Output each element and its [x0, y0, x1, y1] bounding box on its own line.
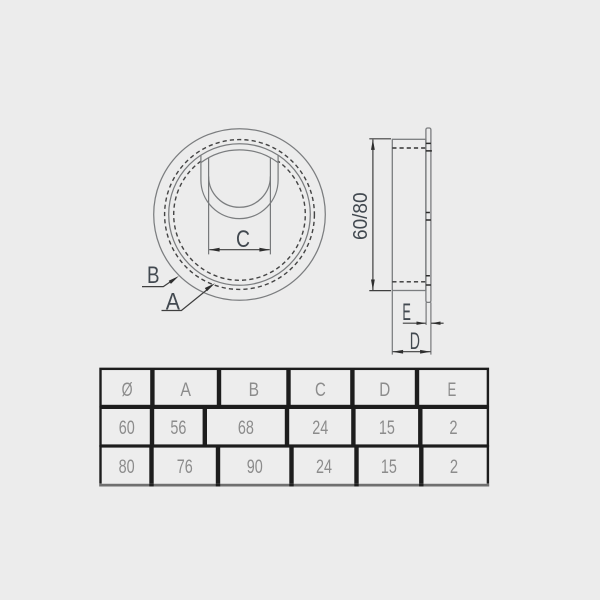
svg-text:2: 2 [449, 417, 457, 439]
svg-text:15: 15 [381, 456, 397, 478]
svg-text:56: 56 [170, 417, 186, 439]
svg-text:76: 76 [177, 456, 193, 478]
svg-text:D: D [410, 328, 420, 355]
svg-text:A: A [180, 379, 191, 401]
svg-text:C: C [315, 379, 326, 401]
svg-text:80: 80 [119, 456, 135, 478]
svg-text:24: 24 [312, 417, 328, 439]
svg-text:B: B [147, 262, 160, 289]
svg-text:E: E [402, 299, 411, 326]
svg-text:24: 24 [316, 456, 332, 478]
svg-text:Ø: Ø [122, 379, 133, 401]
svg-text:60/80: 60/80 [349, 192, 372, 240]
svg-text:E: E [448, 379, 457, 401]
svg-text:C: C [236, 226, 250, 253]
svg-text:D: D [379, 379, 390, 401]
svg-text:2: 2 [450, 456, 458, 478]
svg-text:90: 90 [247, 456, 263, 478]
svg-text:A: A [166, 288, 180, 315]
svg-text:15: 15 [379, 417, 395, 439]
svg-text:B: B [249, 379, 259, 401]
svg-text:68: 68 [238, 417, 254, 439]
svg-text:60: 60 [119, 417, 135, 439]
